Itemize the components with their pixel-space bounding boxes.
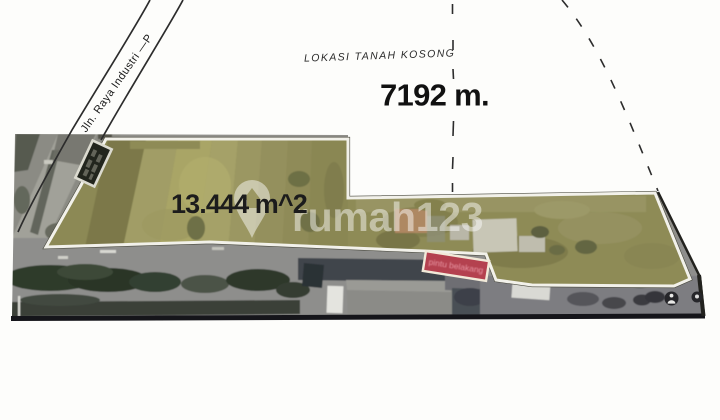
svg-text:7192 m.: 7192 m.	[380, 78, 489, 113]
svg-text:Jln. Raya Industri —P: Jln. Raya Industri —P	[79, 32, 156, 135]
svg-text:LOKASI TANAH KOSONG: LOKASI TANAH KOSONG	[304, 47, 456, 64]
svg-text:rumah123: rumah123	[292, 194, 483, 240]
svg-text:13.444 m^2: 13.444 m^2	[171, 189, 307, 219]
